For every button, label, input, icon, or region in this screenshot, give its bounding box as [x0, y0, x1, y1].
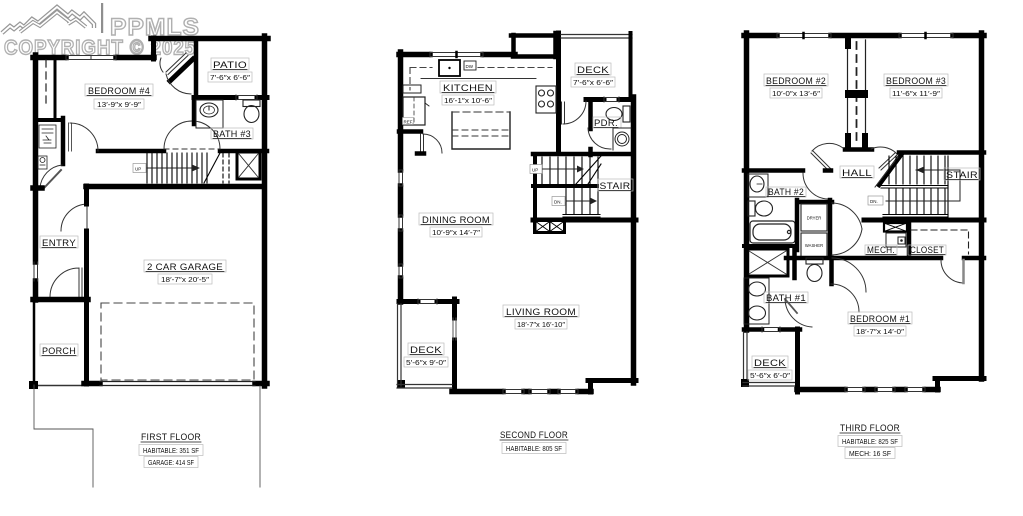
svg-text:13′-9″x 9′-9″: 13′-9″x 9′-9″ [97, 102, 142, 109]
svg-text:UP: UP [135, 167, 141, 172]
svg-text:WASHER: WASHER [805, 243, 823, 248]
svg-text:FIRST FLOOR: FIRST FLOOR [141, 432, 201, 443]
svg-text:18′-7″x 14′-0″: 18′-7″x 14′-0″ [856, 329, 905, 336]
svg-text:UP: UP [532, 168, 538, 173]
svg-text:DW: DW [466, 64, 474, 69]
svg-text:10′-9″x 14′-7″: 10′-9″x 14′-7″ [432, 230, 481, 237]
svg-text:DN.: DN. [554, 200, 562, 205]
svg-text:DRYER: DRYER [807, 216, 822, 221]
svg-text:DN.: DN. [870, 199, 878, 204]
svg-text:MECH: 16 SF: MECH: 16 SF [849, 451, 891, 458]
svg-text:7′-6″x 6′-6″: 7′-6″x 6′-6″ [573, 80, 614, 87]
svg-text:5′-6″x 6′-0″: 5′-6″x 6′-0″ [750, 373, 791, 380]
svg-text:5′-6″x 9′-0″: 5′-6″x 9′-0″ [406, 360, 447, 367]
svg-text:HABITABLE: 351 SF: HABITABLE: 351 SF [143, 448, 199, 455]
svg-text:11′-6″x 11′-9″: 11′-6″x 11′-9″ [892, 91, 941, 98]
svg-text:GARAGE: 414 SF: GARAGE: 414 SF [148, 460, 194, 467]
svg-text:16′-1″x 10′-6″: 16′-1″x 10′-6″ [444, 98, 493, 105]
svg-text:7′-6″x 6′-6″: 7′-6″x 6′-6″ [210, 75, 251, 82]
svg-text:THIRD FLOOR: THIRD FLOOR [840, 423, 900, 434]
svg-text:18′-7″x 20′-5″: 18′-7″x 20′-5″ [161, 277, 210, 284]
svg-text:10′-0″x 13′-6″: 10′-0″x 13′-6″ [772, 91, 821, 98]
svg-text:18′-7″x 16′-10″: 18′-7″x 16′-10″ [517, 322, 566, 329]
svg-text:HABITABLE: 805 SF: HABITABLE: 805 SF [506, 446, 562, 453]
svg-text:SECOND FLOOR: SECOND FLOOR [500, 430, 568, 441]
svg-text:HABITABLE: 825 SF: HABITABLE: 825 SF [842, 439, 898, 446]
svg-text:REF.: REF. [404, 120, 414, 125]
